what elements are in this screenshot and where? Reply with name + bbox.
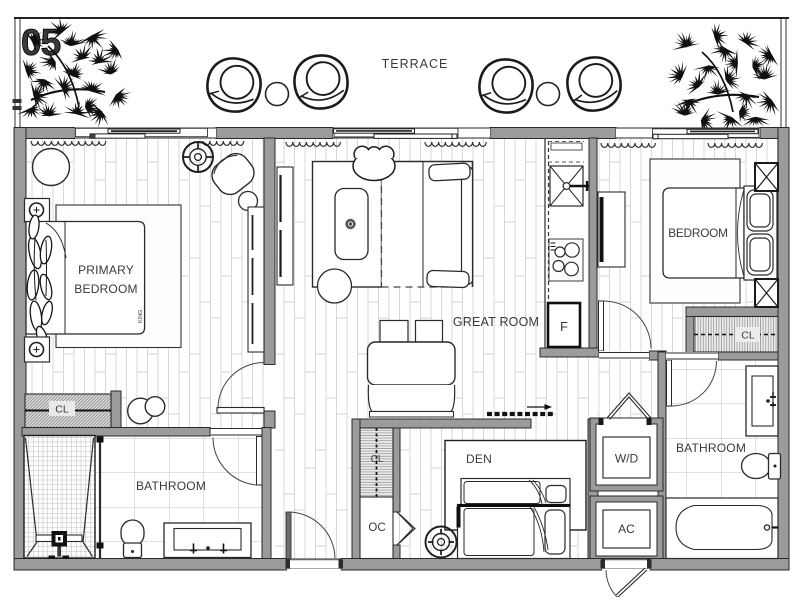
svg-text:BEDROOM: BEDROOM [668, 226, 728, 240]
svg-text:GREAT ROOM: GREAT ROOM [453, 315, 539, 329]
svg-text:05: 05 [21, 22, 61, 63]
svg-text:TERRACE: TERRACE [382, 57, 449, 71]
svg-text:AC: AC [618, 522, 635, 536]
svg-text:BATHROOM: BATHROOM [676, 441, 746, 455]
svg-text:BATHROOM: BATHROOM [136, 479, 206, 493]
svg-text:OC: OC [368, 522, 385, 534]
svg-text:KING: KING [138, 310, 144, 323]
svg-text:F: F [560, 319, 568, 334]
svg-text:CL: CL [55, 404, 69, 416]
svg-text:PRIMARY: PRIMARY [78, 263, 134, 277]
svg-text:CL: CL [371, 454, 384, 465]
svg-text:DEN: DEN [466, 452, 492, 466]
svg-text:W/D: W/D [615, 452, 639, 466]
svg-text:CL: CL [741, 330, 755, 342]
svg-text:BEDROOM: BEDROOM [74, 282, 137, 296]
